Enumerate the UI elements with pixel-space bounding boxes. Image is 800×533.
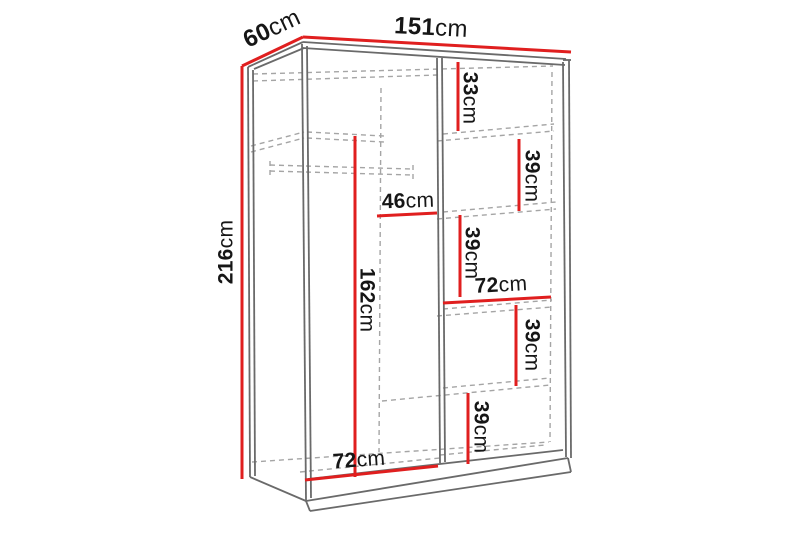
wardrobe-dimension-diagram: 60cm 151cm 216cm 33cm 39cm 46cm 39cm 72c…	[0, 0, 800, 533]
dim-label-width-72-right: 72cm	[474, 273, 528, 297]
dim-label-height-162: 162cm	[357, 268, 378, 333]
dim-label-depth-46: 46cm	[381, 190, 434, 213]
dim-label-height-216: 216cm	[216, 220, 237, 285]
dim-label-gap-33: 33cm	[460, 72, 481, 125]
wardrobe-line-drawing	[0, 0, 800, 533]
dim-label-width-72-left: 72cm	[332, 448, 386, 473]
dim-label-gap-39-a: 39cm	[522, 150, 543, 203]
dim-label-gap-39-b: 39cm	[462, 227, 483, 280]
dim-label-width-151: 151cm	[394, 14, 469, 42]
dim-label-gap-39-c: 39cm	[522, 319, 543, 372]
dim-label-gap-39-d: 39cm	[471, 401, 492, 454]
